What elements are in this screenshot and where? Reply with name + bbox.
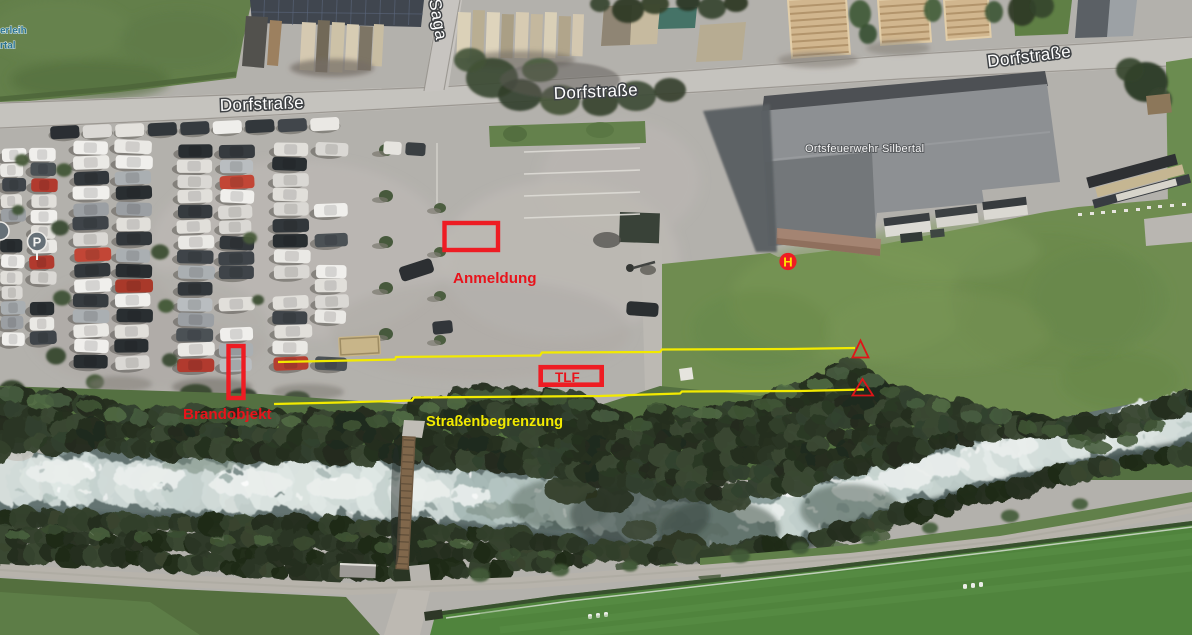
svg-text:TLF: TLF — [555, 370, 580, 385]
svg-text:P: P — [33, 235, 42, 250]
svg-text:Brandobjekt: Brandobjekt — [183, 406, 272, 423]
svg-text:rtal: rtal — [0, 41, 16, 52]
svg-text:erleih: erleih — [0, 26, 27, 37]
svg-text:Anmeldung: Anmeldung — [453, 270, 537, 287]
svg-text:Straßenbegrenzung: Straßenbegrenzung — [426, 414, 563, 430]
svg-text:Dorfstraße: Dorfstraße — [553, 80, 638, 103]
svg-text:Dorfstraße: Dorfstraße — [219, 93, 304, 115]
svg-text:Ortsfeuerwehr Silbertal: Ortsfeuerwehr Silbertal — [805, 143, 924, 155]
svg-text:H: H — [783, 255, 792, 270]
